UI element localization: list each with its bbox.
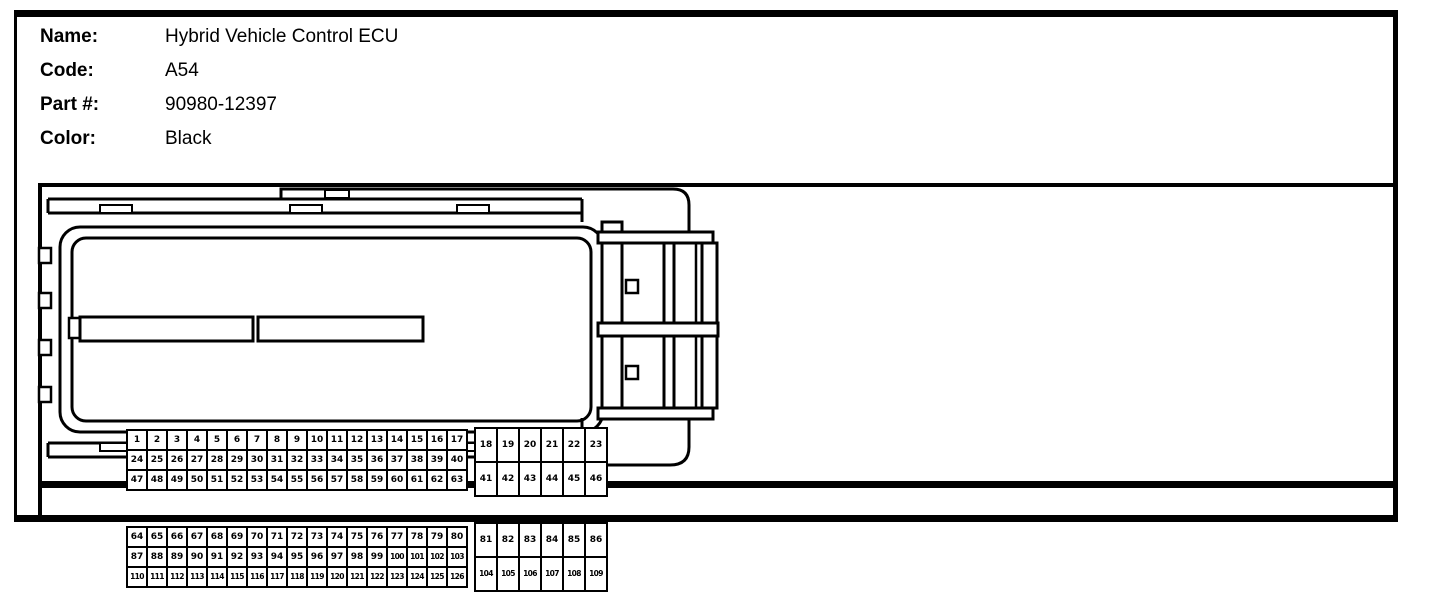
- pin-70: 70: [248, 528, 266, 546]
- pin-18: 18: [476, 429, 496, 461]
- field-color-label: Color:: [40, 128, 96, 150]
- connector-spec-page: Name: Hybrid Vehicle Control ECU Code: A…: [0, 0, 1440, 534]
- pin-29: 29: [228, 451, 246, 469]
- pin-50: 50: [188, 471, 206, 489]
- pin-46: 46: [586, 463, 606, 495]
- pin-115: 115: [228, 568, 246, 586]
- pin-38: 38: [408, 451, 426, 469]
- pin-51: 51: [208, 471, 226, 489]
- pin-125: 125: [428, 568, 446, 586]
- pin-31: 31: [268, 451, 286, 469]
- field-name-value: Hybrid Vehicle Control ECU: [165, 26, 398, 48]
- pin-10: 10: [308, 431, 326, 449]
- field-code-value: A54: [165, 60, 199, 82]
- pin-55: 55: [288, 471, 306, 489]
- pin-72: 72: [288, 528, 306, 546]
- pin-53: 53: [248, 471, 266, 489]
- pin-94: 94: [268, 548, 286, 566]
- pin-91: 91: [208, 548, 226, 566]
- pin-73: 73: [308, 528, 326, 546]
- pin-85: 85: [564, 524, 584, 556]
- pin-126: 126: [448, 568, 466, 586]
- pin-9: 9: [288, 431, 306, 449]
- pin-88: 88: [148, 548, 166, 566]
- pin-36: 36: [368, 451, 386, 469]
- pin-37: 37: [388, 451, 406, 469]
- pin-104: 104: [476, 558, 496, 590]
- pin-block-bottom-left: 6465666768697071727374757677787980878889…: [126, 526, 468, 588]
- pin-21: 21: [542, 429, 562, 461]
- pin-13: 13: [368, 431, 386, 449]
- pin-30: 30: [248, 451, 266, 469]
- pin-101: 101: [408, 548, 426, 566]
- pin-39: 39: [428, 451, 446, 469]
- pin-102: 102: [428, 548, 446, 566]
- pin-28: 28: [208, 451, 226, 469]
- top-flange: [48, 199, 582, 222]
- pin-22: 22: [564, 429, 584, 461]
- pin-120: 120: [328, 568, 346, 586]
- pin-95: 95: [288, 548, 306, 566]
- pin-78: 78: [408, 528, 426, 546]
- pin-63: 63: [448, 471, 466, 489]
- pin-4: 4: [188, 431, 206, 449]
- pin-69: 69: [228, 528, 246, 546]
- pin-111: 111: [148, 568, 166, 586]
- pin-23: 23: [586, 429, 606, 461]
- field-color-value: Black: [165, 128, 211, 150]
- latch-hole-lower: [626, 366, 638, 379]
- pin-81: 81: [476, 524, 496, 556]
- pin-109: 109: [586, 558, 606, 590]
- pin-108: 108: [564, 558, 584, 590]
- pin-124: 124: [408, 568, 426, 586]
- pin-61: 61: [408, 471, 426, 489]
- pin-40: 40: [448, 451, 466, 469]
- pin-105: 105: [498, 558, 518, 590]
- pin-2: 2: [148, 431, 166, 449]
- pin-56: 56: [308, 471, 326, 489]
- pin-17: 17: [448, 431, 466, 449]
- pin-117: 117: [268, 568, 286, 586]
- pin-92: 92: [228, 548, 246, 566]
- field-part-number-value: 90980-12397: [165, 94, 277, 116]
- pin-113: 113: [188, 568, 206, 586]
- pin-86: 86: [586, 524, 606, 556]
- pin-67: 67: [188, 528, 206, 546]
- pin-25: 25: [148, 451, 166, 469]
- side-latch-view: [598, 222, 718, 419]
- pin-44: 44: [542, 463, 562, 495]
- pin-42: 42: [498, 463, 518, 495]
- left-edge-clips: [39, 248, 51, 402]
- pin-66: 66: [168, 528, 186, 546]
- pin-65: 65: [148, 528, 166, 546]
- pin-84: 84: [542, 524, 562, 556]
- pin-122: 122: [368, 568, 386, 586]
- field-part-number-label: Part #:: [40, 94, 99, 116]
- pin-57: 57: [328, 471, 346, 489]
- pin-99: 99: [368, 548, 386, 566]
- pin-block-top-left: 1234567891011121314151617242526272829303…: [126, 429, 468, 491]
- pin-79: 79: [428, 528, 446, 546]
- keyway-slots: [69, 317, 423, 341]
- pin-87: 87: [128, 548, 146, 566]
- pin-59: 59: [368, 471, 386, 489]
- pin-68: 68: [208, 528, 226, 546]
- pin-60: 60: [388, 471, 406, 489]
- pin-26: 26: [168, 451, 186, 469]
- pin-80: 80: [448, 528, 466, 546]
- connector-diagram: 1234567891011121314151617242526272829303…: [36, 180, 736, 480]
- pin-7: 7: [248, 431, 266, 449]
- pin-1: 1: [128, 431, 146, 449]
- pin-19: 19: [498, 429, 518, 461]
- pin-block-bottom-right: 818283848586104105106107108109: [474, 522, 608, 592]
- pin-33: 33: [308, 451, 326, 469]
- pin-11: 11: [328, 431, 346, 449]
- field-code-label: Code:: [40, 60, 94, 82]
- pin-58: 58: [348, 471, 366, 489]
- pin-90: 90: [188, 548, 206, 566]
- pin-93: 93: [248, 548, 266, 566]
- pin-6: 6: [228, 431, 246, 449]
- pin-82: 82: [498, 524, 518, 556]
- pin-24: 24: [128, 451, 146, 469]
- pin-116: 116: [248, 568, 266, 586]
- pin-119: 119: [308, 568, 326, 586]
- pin-54: 54: [268, 471, 286, 489]
- pin-71: 71: [268, 528, 286, 546]
- pin-52: 52: [228, 471, 246, 489]
- pin-32: 32: [288, 451, 306, 469]
- pin-74: 74: [328, 528, 346, 546]
- pin-106: 106: [520, 558, 540, 590]
- pin-14: 14: [388, 431, 406, 449]
- pin-114: 114: [208, 568, 226, 586]
- pin-43: 43: [520, 463, 540, 495]
- pin-97: 97: [328, 548, 346, 566]
- pin-20: 20: [520, 429, 540, 461]
- latch-hole-upper: [626, 280, 638, 293]
- pin-62: 62: [428, 471, 446, 489]
- pin-83: 83: [520, 524, 540, 556]
- pin-98: 98: [348, 548, 366, 566]
- pin-77: 77: [388, 528, 406, 546]
- pin-64: 64: [128, 528, 146, 546]
- pin-45: 45: [564, 463, 584, 495]
- pin-100: 100: [388, 548, 406, 566]
- pin-27: 27: [188, 451, 206, 469]
- pin-41: 41: [476, 463, 496, 495]
- pin-3: 3: [168, 431, 186, 449]
- pin-34: 34: [328, 451, 346, 469]
- pin-89: 89: [168, 548, 186, 566]
- pin-110: 110: [128, 568, 146, 586]
- pin-112: 112: [168, 568, 186, 586]
- pin-107: 107: [542, 558, 562, 590]
- pin-123: 123: [388, 568, 406, 586]
- pin-15: 15: [408, 431, 426, 449]
- pin-5: 5: [208, 431, 226, 449]
- pin-48: 48: [148, 471, 166, 489]
- field-name-label: Name:: [40, 26, 98, 48]
- pin-76: 76: [368, 528, 386, 546]
- pin-35: 35: [348, 451, 366, 469]
- pin-103: 103: [448, 548, 466, 566]
- pin-block-top-right: 181920212223414243444546: [474, 427, 608, 497]
- pin-47: 47: [128, 471, 146, 489]
- pin-16: 16: [428, 431, 446, 449]
- pin-49: 49: [168, 471, 186, 489]
- pin-75: 75: [348, 528, 366, 546]
- pin-121: 121: [348, 568, 366, 586]
- pin-96: 96: [308, 548, 326, 566]
- pin-12: 12: [348, 431, 366, 449]
- pin-8: 8: [268, 431, 286, 449]
- pin-118: 118: [288, 568, 306, 586]
